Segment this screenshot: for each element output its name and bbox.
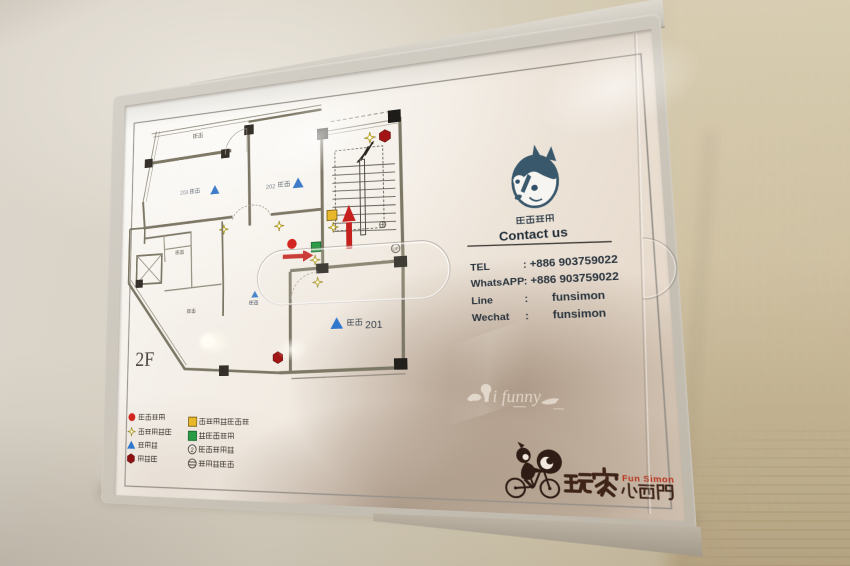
- svg-text:+886 903759022: +886 903759022: [529, 252, 618, 270]
- svg-text:funsimon: funsimon: [552, 289, 606, 304]
- svg-text::: :: [523, 275, 527, 288]
- svg-text:+886 903759022: +886 903759022: [530, 270, 619, 287]
- svg-text:Fun Simon: Fun Simon: [622, 475, 675, 486]
- svg-text:201: 201: [365, 318, 383, 331]
- svg-text:203: 203: [180, 189, 189, 196]
- svg-text:2F: 2F: [135, 348, 154, 371]
- svg-text:UP: UP: [392, 246, 399, 252]
- svg-text:2: 2: [191, 447, 194, 455]
- svg-text::: :: [523, 258, 527, 271]
- svg-text::: :: [524, 292, 528, 305]
- svg-text:Line: Line: [471, 294, 493, 307]
- svg-text:TEL: TEL: [470, 260, 491, 273]
- svg-text:Wechat: Wechat: [472, 310, 511, 324]
- svg-text:WhatsAPP: WhatsAPP: [471, 275, 525, 290]
- svg-text:Contact us: Contact us: [499, 225, 568, 243]
